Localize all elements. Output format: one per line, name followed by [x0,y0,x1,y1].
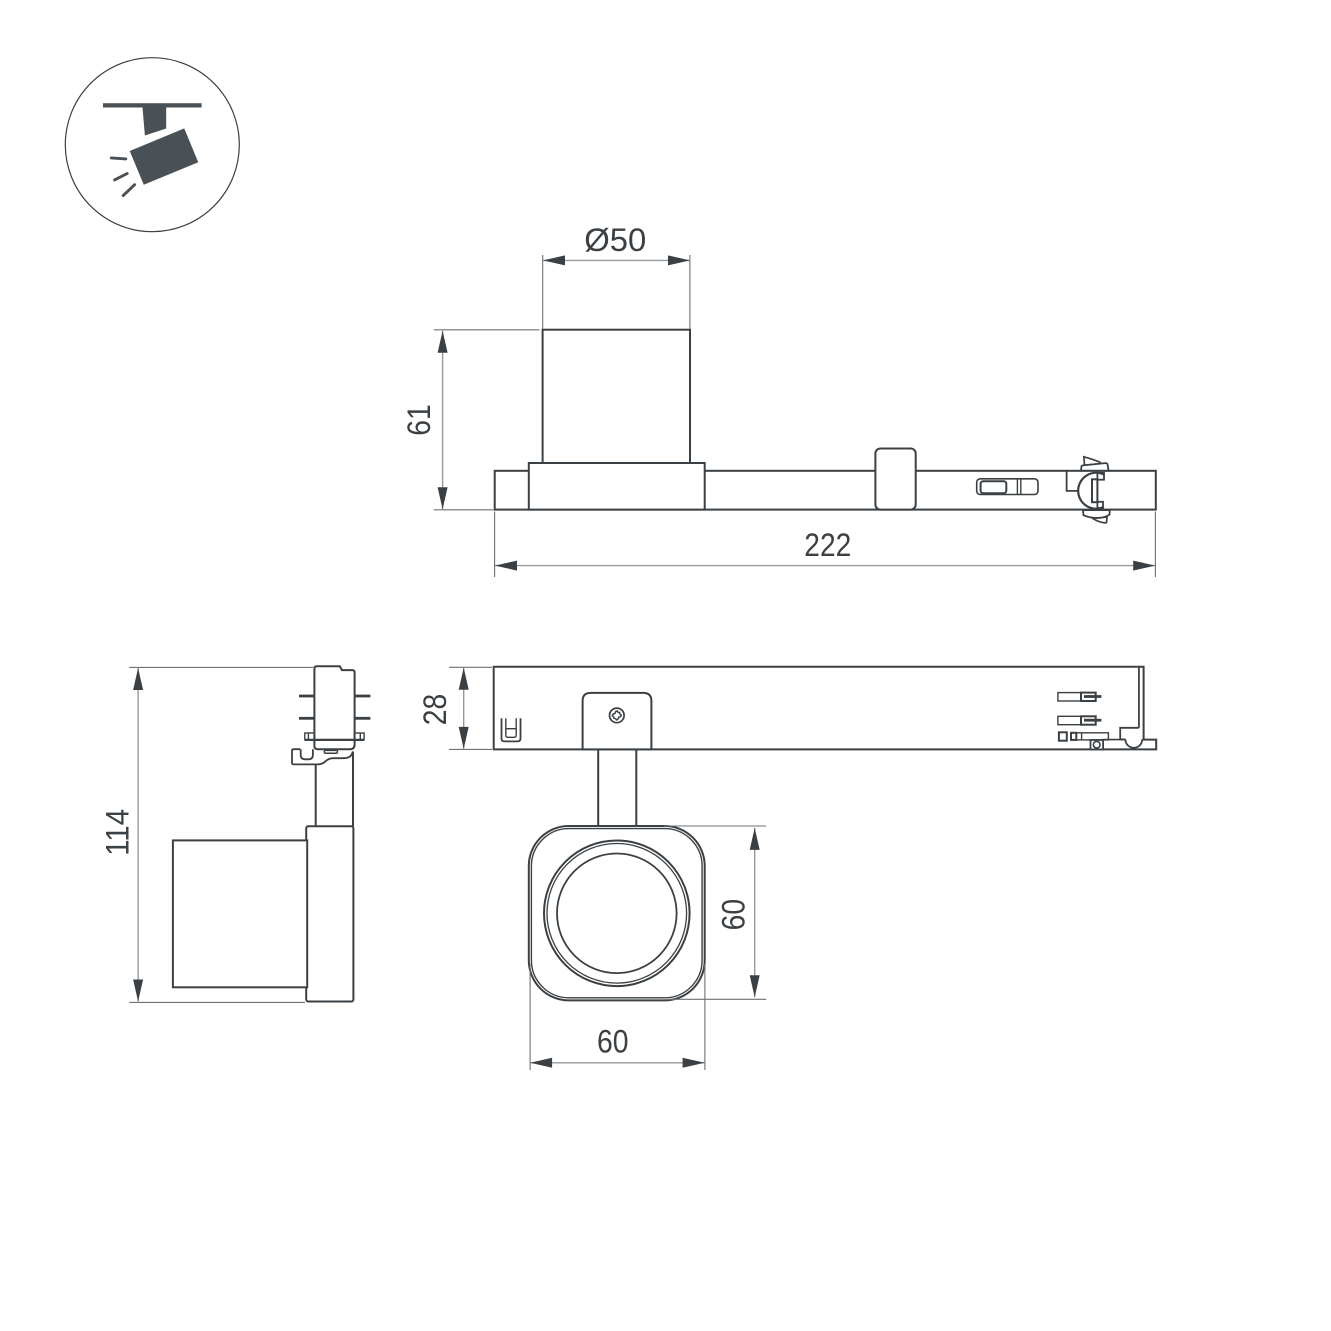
svg-text:Ø50: Ø50 [584,222,646,258]
svg-text:61: 61 [401,404,437,436]
svg-text:114: 114 [100,809,136,856]
svg-text:60: 60 [597,1024,629,1060]
svg-text:28: 28 [417,694,453,726]
svg-text:222: 222 [804,527,851,563]
svg-text:60: 60 [715,899,751,931]
